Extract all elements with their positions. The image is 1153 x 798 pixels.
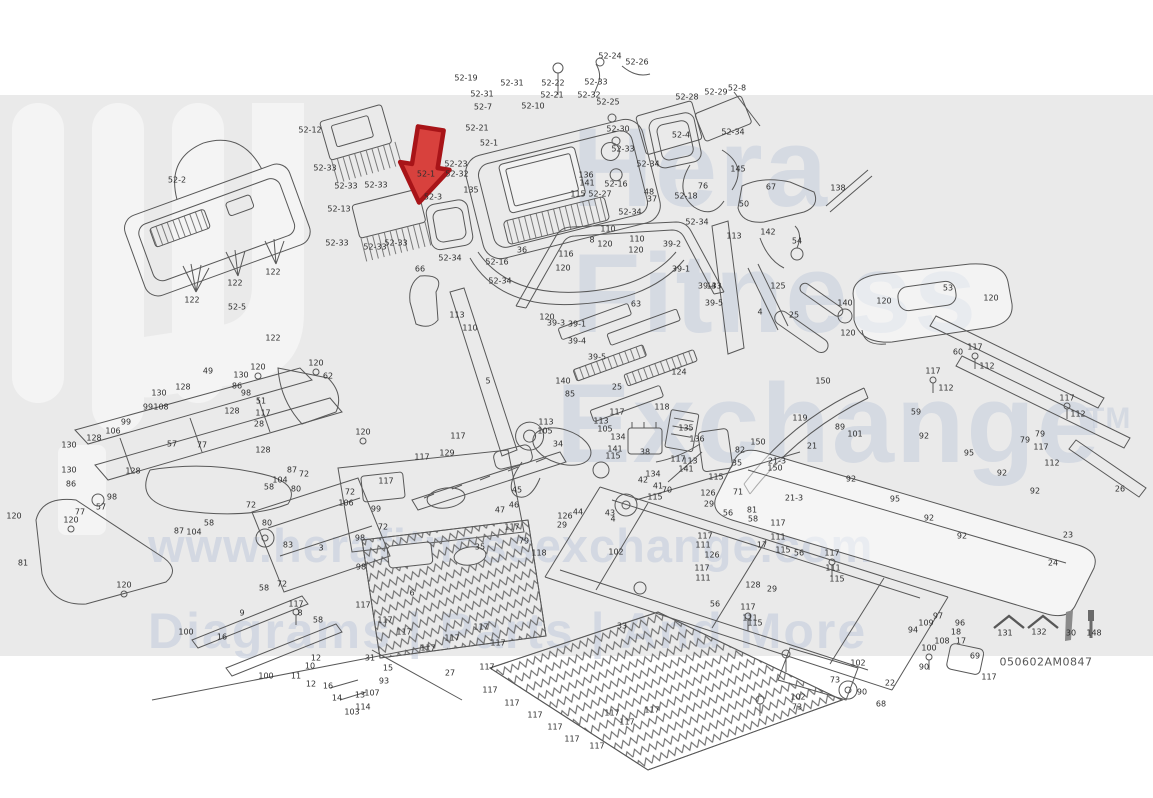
part-label: 52-3 xyxy=(424,193,442,202)
part-label: 122 xyxy=(265,334,280,343)
part-label: 112 xyxy=(1044,459,1059,468)
part-label: 100 xyxy=(921,644,936,653)
part-label: 130 xyxy=(61,441,76,450)
part-label: 50 xyxy=(739,200,749,209)
part-label: 115 xyxy=(747,619,762,628)
part-label: 95 xyxy=(890,495,900,504)
part-label: 29 xyxy=(557,521,567,530)
part-label: 102 xyxy=(608,548,623,557)
part-label: 70 xyxy=(662,486,672,495)
part-label: 52-32 xyxy=(445,170,468,179)
part-label: 117 xyxy=(527,711,542,720)
part-label: 52-8 xyxy=(728,84,746,93)
part-label: 45 xyxy=(512,486,522,495)
part-label: 117 xyxy=(644,706,659,715)
part-label: 90 xyxy=(919,663,929,672)
part-label: 11 xyxy=(291,672,301,681)
part-label: 25 xyxy=(612,383,622,392)
part-label: 128 xyxy=(255,446,270,455)
part-label: 56 xyxy=(710,600,720,609)
part-label: 105 xyxy=(537,427,552,436)
part-label: 72 xyxy=(378,523,388,532)
part-label: 124 xyxy=(671,368,686,377)
part-label: 97 xyxy=(933,612,943,621)
part-label: 111 xyxy=(695,574,710,583)
part-label: 117 xyxy=(504,523,519,532)
part-label: 34 xyxy=(553,440,563,449)
part-label: 136 xyxy=(689,435,704,444)
part-label: 72 xyxy=(277,580,287,589)
part-label: 126 xyxy=(704,551,719,560)
part-label: 72 xyxy=(246,501,256,510)
part-label: 52-29 xyxy=(704,88,727,97)
part-label: 52-34 xyxy=(685,218,708,227)
part-label: 60 xyxy=(953,348,963,357)
part-label: 90 xyxy=(857,688,867,697)
part-label: 39-2 xyxy=(663,240,681,249)
part-label: 52-33 xyxy=(334,182,357,191)
part-label: 52-21 xyxy=(465,124,488,133)
part-label: 106 xyxy=(338,499,353,508)
part-label: 52-26 xyxy=(625,58,648,67)
part-label: 128 xyxy=(224,407,239,416)
part-label: 138 xyxy=(830,184,845,193)
part-label: 63 xyxy=(631,300,641,309)
part-label: 27 xyxy=(445,669,455,678)
part-label: 10 xyxy=(305,662,315,671)
part-label: 128 xyxy=(175,383,190,392)
part-label: 120 xyxy=(876,297,891,306)
part-label: 14 xyxy=(332,694,342,703)
part-label: 120 xyxy=(355,428,370,437)
part-label: 52-34 xyxy=(636,160,659,169)
part-label: 117 xyxy=(589,742,604,751)
part-label: 8 xyxy=(297,609,302,618)
part-label: 120 xyxy=(840,329,855,338)
part-label: 117 xyxy=(377,616,392,625)
part-label: 47 xyxy=(495,506,505,515)
part-label: 115 xyxy=(647,493,662,502)
part-label: 49 xyxy=(203,367,213,376)
part-label: 117 xyxy=(604,709,619,718)
part-label: 39-1 xyxy=(672,265,690,274)
part-label: 128 xyxy=(86,434,101,443)
part-label: 93 xyxy=(379,677,389,686)
part-label: 35 xyxy=(475,543,485,552)
part-label: 57 xyxy=(96,503,106,512)
part-label: 115 xyxy=(605,452,620,461)
part-label: 52-18 xyxy=(674,192,697,201)
part-label: 115 xyxy=(775,546,790,555)
part-label: 92 xyxy=(919,432,929,441)
part-label: 110 xyxy=(629,235,644,244)
part-label: 117 xyxy=(619,718,634,727)
part-label: 118 xyxy=(654,403,669,412)
part-label: 53 xyxy=(943,284,953,293)
part-label: 117 xyxy=(414,453,429,462)
part-label: 52-1 xyxy=(480,139,498,148)
part-label: 117 xyxy=(288,600,303,609)
part-label: 39-1 xyxy=(568,320,586,329)
part-label: 52-34 xyxy=(488,277,511,286)
part-label: 115 xyxy=(708,473,723,482)
part-label: 87 xyxy=(174,527,184,536)
part-label: 58 xyxy=(259,584,269,593)
part-label: 98 xyxy=(356,563,366,572)
part-label: 117 xyxy=(981,673,996,682)
part-label: 108 xyxy=(153,403,168,412)
part-label: 111 xyxy=(825,564,840,573)
part-label: 135 xyxy=(678,424,693,433)
part-label: 133 xyxy=(706,282,721,291)
part-label: 126 xyxy=(557,512,572,521)
part-label: 100 xyxy=(178,628,193,637)
part-label: 77 xyxy=(197,441,207,450)
part-label: 120 xyxy=(250,363,265,372)
part-label: 52-2 xyxy=(168,176,186,185)
part-label: 52-22 xyxy=(541,79,564,88)
part-label: 52-30 xyxy=(606,125,629,134)
part-labels-layer: 52-1952-3152-3152-2252-3352-2452-2652-21… xyxy=(0,0,1153,798)
part-label: 51 xyxy=(256,397,266,406)
part-label: 132 xyxy=(1031,628,1046,637)
part-label: 29 xyxy=(767,585,777,594)
part-label: 141 xyxy=(579,179,594,188)
part-label: 42 xyxy=(638,476,648,485)
part-label: 99 xyxy=(121,418,131,427)
part-label: 23 xyxy=(1063,531,1073,540)
part-label: 56 xyxy=(723,509,733,518)
part-label: 56 xyxy=(794,549,804,558)
part-label: 33 xyxy=(617,622,627,631)
part-label: 112 xyxy=(979,362,994,371)
drawing-code: 050602AM0847 xyxy=(999,656,1092,669)
part-label: 98 xyxy=(241,389,251,398)
part-label: 52-34 xyxy=(438,254,461,263)
part-label: 145 xyxy=(730,165,745,174)
part-label: 15 xyxy=(383,664,393,673)
part-label: 113 xyxy=(538,418,553,427)
part-label: 52-7 xyxy=(474,103,492,112)
part-label: 115 xyxy=(570,190,585,199)
part-label: 52-19 xyxy=(454,74,477,83)
part-label: 26 xyxy=(1115,485,1125,494)
part-label: 9 xyxy=(239,609,244,618)
part-label: 102 xyxy=(790,693,805,702)
part-label: 120 xyxy=(63,516,78,525)
part-label: 126 xyxy=(700,489,715,498)
part-label: 39-3 xyxy=(547,319,565,328)
part-label: 120 xyxy=(308,359,323,368)
part-label: 52-33 xyxy=(325,239,348,248)
part-label: 66 xyxy=(415,265,425,274)
part-label: 117 xyxy=(609,408,624,417)
part-label: 117 xyxy=(450,432,465,441)
part-label: 141 xyxy=(678,465,693,474)
part-label: 110 xyxy=(462,324,477,333)
part-label: 69 xyxy=(970,652,980,661)
part-label: 30 xyxy=(1066,629,1076,638)
part-label: 131 xyxy=(997,629,1012,638)
part-label: 117 xyxy=(396,628,411,637)
part-label: 140 xyxy=(837,299,852,308)
part-label: 21-3 xyxy=(785,494,803,503)
part-label: 111 xyxy=(695,541,710,550)
part-label: 21 xyxy=(807,442,817,451)
part-label: 83 xyxy=(283,541,293,550)
part-label: 120 xyxy=(628,246,643,255)
part-label: 59 xyxy=(911,408,921,417)
part-label: 8 xyxy=(589,236,594,245)
part-label: 52-33 xyxy=(584,78,607,87)
part-label: 116 xyxy=(558,250,573,259)
part-label: 117 xyxy=(420,644,435,653)
part-label: 109 xyxy=(918,619,933,628)
part-label: 112 xyxy=(1070,410,1085,419)
part-label: 4 xyxy=(757,308,762,317)
part-label: 113 xyxy=(449,311,464,320)
part-label: 117 xyxy=(694,564,709,573)
part-label: 16 xyxy=(323,682,333,691)
part-label: 52-10 xyxy=(521,102,544,111)
part-label: 120 xyxy=(6,512,21,521)
part-label: 36 xyxy=(517,246,527,255)
part-label: 130 xyxy=(61,466,76,475)
part-label: 72 xyxy=(345,488,355,497)
part-label: 81 xyxy=(18,559,28,568)
part-label: 37 xyxy=(647,195,657,204)
part-label: 118 xyxy=(531,549,546,558)
part-label: 120 xyxy=(597,240,612,249)
part-label: 117 xyxy=(378,477,393,486)
part-label: 72 xyxy=(299,470,309,479)
part-label: 58 xyxy=(264,483,274,492)
part-label: 86 xyxy=(66,480,76,489)
part-label: 71 xyxy=(733,488,743,497)
part-label: 120 xyxy=(116,581,131,590)
part-label: 122 xyxy=(184,296,199,305)
part-label: 52-24 xyxy=(598,52,621,61)
part-label: 117 xyxy=(355,601,370,610)
part-label: 117 xyxy=(490,639,505,648)
part-label: 113 xyxy=(726,232,741,241)
part-label: 44 xyxy=(573,508,583,517)
part-label: 58 xyxy=(313,616,323,625)
part-label: 58 xyxy=(204,519,214,528)
part-label: 76 xyxy=(698,182,708,191)
part-label: 98 xyxy=(355,534,365,543)
part-label: 39-5 xyxy=(705,299,723,308)
part-label: 117 xyxy=(697,532,712,541)
part-label: 119 xyxy=(792,414,807,423)
part-label: 87 xyxy=(287,466,297,475)
part-label: 52-13 xyxy=(327,205,350,214)
part-label: 130 xyxy=(151,389,166,398)
part-label: 134 xyxy=(610,433,625,442)
part-label: 80 xyxy=(291,485,301,494)
part-label: 52-1 xyxy=(417,170,435,179)
part-label: 108 xyxy=(934,637,949,646)
part-label: 38 xyxy=(640,448,650,457)
part-label: 103 xyxy=(344,708,359,717)
part-label: 52-33 xyxy=(611,145,634,154)
part-label: 6 xyxy=(409,589,414,598)
part-label: 17 xyxy=(757,541,767,550)
part-label: 22 xyxy=(885,679,895,688)
part-label: 52-33 xyxy=(313,164,336,173)
part-label: 101 xyxy=(847,430,862,439)
part-label: 52-33 xyxy=(363,243,386,252)
part-label: 130 xyxy=(233,371,248,380)
part-label: 17 xyxy=(956,637,966,646)
part-label: 21-3 xyxy=(768,457,786,466)
part-label: 92 xyxy=(846,475,856,484)
part-label: 117 xyxy=(255,409,270,418)
part-label: 68 xyxy=(876,700,886,709)
part-label: 46 xyxy=(509,501,519,510)
part-label: 35 xyxy=(732,459,742,468)
part-label: 52-16 xyxy=(485,258,508,267)
part-label: 81 xyxy=(747,506,757,515)
part-label: 31 xyxy=(365,654,375,663)
part-label: 125 xyxy=(770,282,785,291)
part-label: 120 xyxy=(555,264,570,273)
part-label: 92 xyxy=(957,532,967,541)
part-label: 98 xyxy=(107,493,117,502)
part-label: 117 xyxy=(824,549,839,558)
part-label: 117 xyxy=(444,634,459,643)
part-label: 96 xyxy=(955,619,965,628)
part-label: 52-4 xyxy=(672,131,690,140)
part-label: 24 xyxy=(1048,559,1058,568)
part-label: 52-28 xyxy=(675,93,698,102)
part-label: 99 xyxy=(143,403,153,412)
part-label: 52-31 xyxy=(500,79,523,88)
part-label: 52-16 xyxy=(604,180,627,189)
part-label: 52-25 xyxy=(596,98,619,107)
part-label: 4 xyxy=(610,515,615,524)
part-label: 16 xyxy=(217,633,227,642)
part-label: 129 xyxy=(439,449,454,458)
part-label: 12 xyxy=(306,680,316,689)
part-label: 117 xyxy=(770,519,785,528)
part-label: 41 xyxy=(653,482,663,491)
part-label: 115 xyxy=(829,575,844,584)
part-label: 135 xyxy=(463,186,478,195)
part-label: 117 xyxy=(504,699,519,708)
part-label: 117 xyxy=(1059,394,1074,403)
part-label: 79 xyxy=(1035,430,1045,439)
part-label: 39-5 xyxy=(588,353,606,362)
part-label: 92 xyxy=(1030,487,1040,496)
part-label: 3 xyxy=(318,544,323,553)
part-label: 79 xyxy=(519,537,529,546)
part-label: 67 xyxy=(766,183,776,192)
part-label: 25 xyxy=(789,311,799,320)
part-label: 117 xyxy=(547,723,562,732)
part-label: 5 xyxy=(485,377,490,386)
part-label: 122 xyxy=(227,279,242,288)
part-label: 58 xyxy=(748,515,758,524)
part-label: 100 xyxy=(258,672,273,681)
part-label: 52-12 xyxy=(298,126,321,135)
parts-diagram-screenshot: Hera Fitness Exchange TM www.herafitness… xyxy=(0,0,1153,798)
part-label: 39-4 xyxy=(568,337,586,346)
part-label: 82 xyxy=(735,446,745,455)
part-label: 85 xyxy=(565,390,575,399)
part-label: 117 xyxy=(925,367,940,376)
part-label: 28 xyxy=(254,420,264,429)
part-label: 120 xyxy=(983,294,998,303)
part-label: 110 xyxy=(600,225,615,234)
part-label: 57 xyxy=(167,440,177,449)
part-label: 150 xyxy=(750,438,765,447)
part-label: 117 xyxy=(479,663,494,672)
part-label: 73 xyxy=(830,676,840,685)
part-label: 52-23 xyxy=(444,160,467,169)
part-label: 62 xyxy=(323,372,333,381)
part-label: 104 xyxy=(272,476,287,485)
part-label: 52-34 xyxy=(721,128,744,137)
part-label: 128 xyxy=(125,467,140,476)
part-label: 117 xyxy=(967,343,982,352)
part-label: 54 xyxy=(792,237,802,246)
part-label: 92 xyxy=(924,514,934,523)
part-label: 80 xyxy=(262,519,272,528)
part-label: 117 xyxy=(564,735,579,744)
part-label: 52-31 xyxy=(470,90,493,99)
part-label: 73 xyxy=(792,703,802,712)
part-label: 52-33 xyxy=(384,239,407,248)
part-label: 104 xyxy=(186,528,201,537)
part-label: 52-34 xyxy=(618,208,641,217)
part-label: 95 xyxy=(964,449,974,458)
part-label: 52-33 xyxy=(364,181,387,190)
part-label: 18 xyxy=(951,628,961,637)
part-label: 52-21 xyxy=(540,91,563,100)
part-label: 89 xyxy=(835,423,845,432)
part-label: 142 xyxy=(760,228,775,237)
part-label: 117 xyxy=(482,686,497,695)
part-label: 29 xyxy=(704,500,714,509)
part-label: 117 xyxy=(1033,443,1048,452)
part-label: 122 xyxy=(265,268,280,277)
part-label: 107 xyxy=(364,689,379,698)
part-label: 106 xyxy=(105,427,120,436)
part-label: 92 xyxy=(997,469,1007,478)
part-label: 117 xyxy=(740,603,755,612)
part-label: 148 xyxy=(1086,629,1101,638)
part-label: 112 xyxy=(938,384,953,393)
part-label: 52-27 xyxy=(588,190,611,199)
part-label: 128 xyxy=(745,581,760,590)
part-label: 111 xyxy=(770,533,785,542)
part-label: 99 xyxy=(371,505,381,514)
part-label: 79 xyxy=(1020,436,1030,445)
part-label: 150 xyxy=(815,377,830,386)
part-label: 52-5 xyxy=(228,303,246,312)
part-label: 94 xyxy=(908,626,918,635)
part-label: 102 xyxy=(850,659,865,668)
part-label: 117 xyxy=(473,623,488,632)
part-label: 140 xyxy=(555,377,570,386)
